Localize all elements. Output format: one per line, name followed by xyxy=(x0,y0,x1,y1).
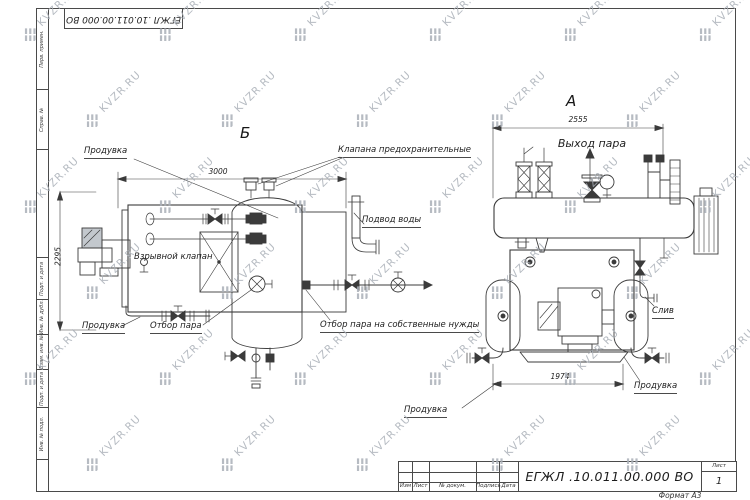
dimension-2555 xyxy=(493,124,663,198)
callout-steam-takeoff: Отбор пара xyxy=(150,321,202,334)
callout-explosion-valve: Взрывной клапан xyxy=(134,252,213,263)
drawing-sheet: Перв. примен. Справ. № Подп. и дата Инв.… xyxy=(0,0,750,500)
callout-water-supply: Подвод воды xyxy=(362,215,421,228)
dimension-3000-text: 3000 xyxy=(196,167,240,176)
callout-steam-outlet: Выход пара xyxy=(550,137,634,151)
dimension-2295-text: 2295 xyxy=(54,237,63,277)
dimension-3000 xyxy=(118,172,346,208)
technical-drawing xyxy=(0,0,750,500)
callout-blowdown-bottom: Продувка xyxy=(82,321,125,334)
dimension-1974-text: 1974 xyxy=(542,372,578,381)
front-view-a-drawing xyxy=(467,147,718,363)
callout-blowdown-center: Продувка xyxy=(404,405,447,418)
dimension-2295 xyxy=(58,192,97,330)
dimension-2555-text: 2555 xyxy=(556,115,600,124)
callout-blowdown-top: Продувка xyxy=(84,146,127,159)
view-label-a: А xyxy=(566,92,576,111)
leader-lines-b xyxy=(122,157,364,326)
steam-outlet-arrow xyxy=(586,149,594,182)
callout-drain: Слив xyxy=(652,306,674,319)
view-label-b: Б xyxy=(240,124,250,143)
side-view-b-drawing xyxy=(78,178,432,388)
callout-safety-valves: Клапана предохранительные xyxy=(338,145,471,158)
callout-steam-own-needs: Отбор пара на собственные нужды xyxy=(320,320,479,333)
callout-blowdown-right: Продувка xyxy=(634,381,677,394)
